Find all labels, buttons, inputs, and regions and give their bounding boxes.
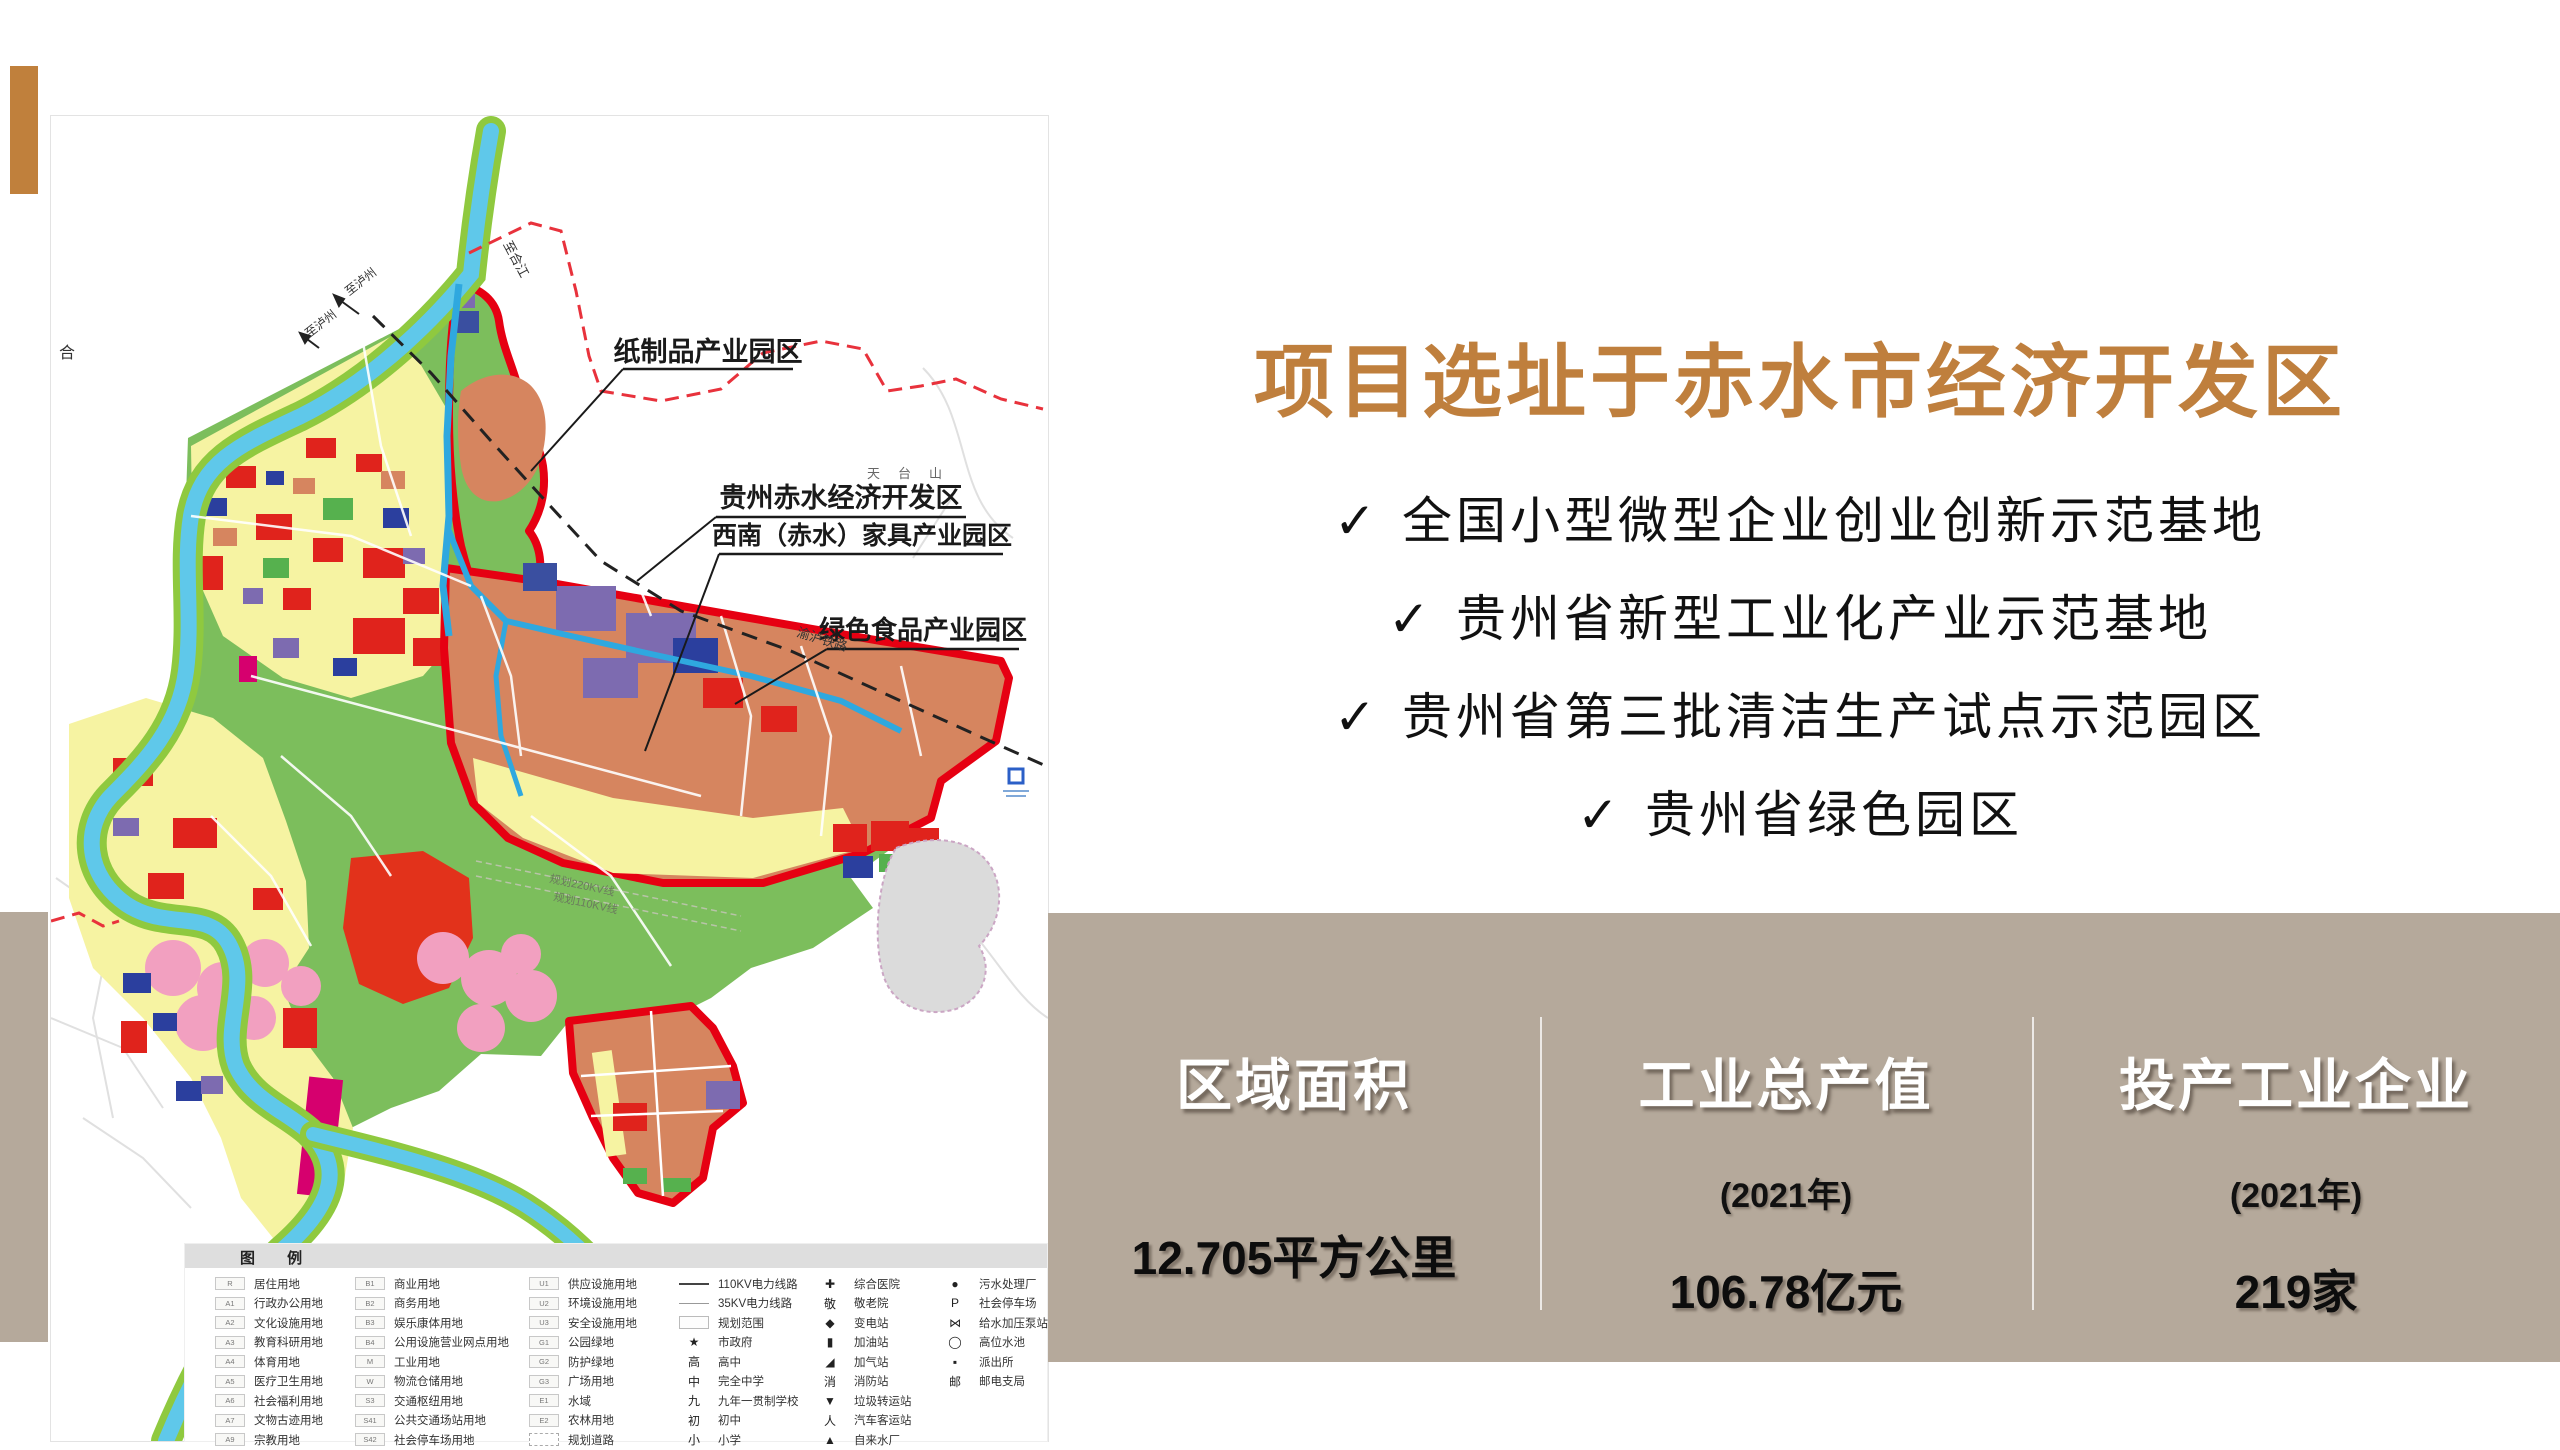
legend-label: 九年一贯制学校 <box>718 1393 799 1409</box>
legend-label: 综合医院 <box>854 1276 900 1292</box>
legend-item: ●污水处理厂 <box>940 1274 1048 1294</box>
zone-food-park <box>569 1006 743 1203</box>
legend-label: 垃圾转运站 <box>854 1393 912 1409</box>
check-icon: ✓ <box>1334 493 1380 549</box>
sym-swatch: 人 <box>815 1414 845 1427</box>
legend-item: S3交通枢纽用地 <box>355 1391 509 1411</box>
legend-item: ◆变电站 <box>815 1313 912 1333</box>
legend-item: A3教育科研用地 <box>215 1333 323 1353</box>
legend-item: ▼垃圾转运站 <box>815 1391 912 1411</box>
legend-label: 汽车客运站 <box>854 1412 912 1428</box>
legend-item: ✚综合医院 <box>815 1274 912 1294</box>
legend-item: 110KV电力线路 <box>679 1274 799 1294</box>
legend-item: S41公共交通场站用地 <box>355 1411 509 1431</box>
legend-label: 水域 <box>568 1393 591 1409</box>
legend-item: G2防护绿地 <box>529 1352 637 1372</box>
legend-item: B3娱乐康体用地 <box>355 1313 509 1333</box>
landuse-swatch: B3 <box>355 1316 385 1329</box>
landuse-swatch: A1 <box>215 1297 245 1310</box>
landuse-swatch: G3 <box>529 1375 559 1388</box>
legend-label: 广场用地 <box>568 1373 614 1389</box>
landuse-swatch: U2 <box>529 1297 559 1310</box>
landuse-swatch: S41 <box>355 1414 385 1427</box>
map-label: 天台山 <box>867 466 960 481</box>
legend-item: 消消防站 <box>815 1372 912 1392</box>
sym-swatch: 敬 <box>815 1297 845 1310</box>
legend-label: 消防站 <box>854 1373 889 1389</box>
legend-label: 市政府 <box>718 1334 753 1350</box>
landuse-swatch: B4 <box>355 1336 385 1349</box>
legend-label: 商业用地 <box>394 1276 440 1292</box>
bullet-item: ✓贵州省绿色园区 <box>1070 766 2530 864</box>
stat-title: 投产工业企业 <box>2032 1041 2560 1122</box>
legend-item: E1水域 <box>529 1391 637 1411</box>
legend-column: ✚综合医院敬敬老院◆变电站▮加油站◢加气站消消防站▼垃圾转运站人汽车客运站▲自来… <box>815 1274 912 1450</box>
legend-item: B2商务用地 <box>355 1294 509 1314</box>
landuse-swatch: E2 <box>529 1414 559 1427</box>
legend-label: 35KV电力线路 <box>718 1295 792 1311</box>
sym-swatch: ▮ <box>815 1336 845 1349</box>
legend-item: ⋈给水加压泵站 <box>940 1313 1048 1333</box>
legend-item: ◯高位水池 <box>940 1333 1048 1353</box>
legend-item: E2农林用地 <box>529 1411 637 1431</box>
title-accent-bar <box>10 66 38 194</box>
line35-swatch <box>679 1297 709 1310</box>
sym-swatch: 高 <box>679 1355 709 1368</box>
legend-label: 体育用地 <box>254 1354 300 1370</box>
map-label: 纸制品产业园区 <box>614 336 803 367</box>
legend-item: B1商业用地 <box>355 1274 509 1294</box>
legend-header: 图 例 <box>185 1244 1047 1268</box>
landuse-swatch: G2 <box>529 1355 559 1368</box>
legend-label: 文化设施用地 <box>254 1315 323 1331</box>
map-label: 西南（赤水）家具产业园区 <box>712 521 1012 550</box>
stat-year: (2021年) <box>1540 1168 2032 1217</box>
legend-item: A5医疗卫生用地 <box>215 1372 323 1392</box>
legend-label: 初中 <box>718 1412 741 1428</box>
legend-item: ▪派出所 <box>940 1352 1048 1372</box>
stat-enterprises: 投产工业企业 (2021年) 219家 <box>2032 913 2560 1362</box>
legend-item: R居住用地 <box>215 1274 323 1294</box>
map-label: 至泸州 <box>302 307 339 340</box>
legend-label: 加气站 <box>854 1354 889 1370</box>
legend-item: 邮邮电支局 <box>940 1372 1048 1392</box>
legend-label: 交通枢纽用地 <box>394 1393 463 1409</box>
landuse-swatch: M <box>355 1355 385 1368</box>
legend-item: A1行政办公用地 <box>215 1294 323 1314</box>
bullet-text: 贵州省绿色园区 <box>1645 787 2023 843</box>
map-label: 至合江 <box>500 238 532 279</box>
stat-area: 区域面积 12.705平方公里 <box>1048 913 1540 1362</box>
bullet-item: ✓贵州省第三批清洁生产试点示范园区 <box>1070 668 2530 766</box>
section-headline: 项目选址于赤水市经济开发区 <box>1070 318 2530 434</box>
left-accent-band <box>0 912 48 1342</box>
sym-swatch: ⋈ <box>940 1316 970 1329</box>
legend-item: 敬敬老院 <box>815 1294 912 1314</box>
legend-label: 高中 <box>718 1354 741 1370</box>
legend-column: 110KV电力线路35KV电力线路规划范围★市政府高高中中完全中学九九年一贯制学… <box>679 1274 799 1450</box>
legend-label: 公用设施营业网点用地 <box>394 1334 509 1350</box>
line110-swatch <box>679 1277 709 1290</box>
sym-swatch: ▼ <box>815 1394 845 1407</box>
stat-title: 工业总产值 <box>1540 1041 2032 1122</box>
legend-item: U2环境设施用地 <box>529 1294 637 1314</box>
legend-column: ●污水处理厂P社会停车场⋈给水加压泵站◯高位水池▪派出所邮邮电支局 <box>940 1274 1048 1391</box>
legend-label: 高位水池 <box>979 1334 1025 1350</box>
legend-label: 社会停车场 <box>979 1295 1037 1311</box>
legend-label: 教育科研用地 <box>254 1334 323 1350</box>
map-label: 贵州赤水经济开发区 <box>720 482 963 513</box>
legend-label: 给水加压泵站 <box>979 1315 1048 1331</box>
legend-item: 高高中 <box>679 1352 799 1372</box>
sym-swatch: P <box>940 1297 970 1310</box>
bullet-text: 贵州省第三批清洁生产试点示范园区 <box>1402 689 2266 745</box>
landuse-swatch: R <box>215 1277 245 1290</box>
legend-column: U1供应设施用地U2环境设施用地U3安全设施用地G1公园绿地G2防护绿地G3广场… <box>529 1274 637 1450</box>
landuse-swatch: A4 <box>215 1355 245 1368</box>
sym-swatch: ● <box>940 1277 970 1290</box>
legend-label: 环境设施用地 <box>568 1295 637 1311</box>
bullet-list: ✓全国小型微型企业创业创新示范基地 ✓贵州省新型工业化产业示范基地 ✓贵州省第三… <box>1070 472 2530 864</box>
map-legend: 图 例 R居住用地A1行政办公用地A2文化设施用地A3教育科研用地A4体育用地A… <box>184 1243 1048 1442</box>
sym-swatch: 九 <box>679 1394 709 1407</box>
legend-item: 中完全中学 <box>679 1372 799 1392</box>
legend-item: ▮加油站 <box>815 1333 912 1353</box>
check-icon: ✓ <box>1334 689 1380 745</box>
stat-title: 区域面积 <box>1048 1041 1540 1122</box>
legend-item: ★市政府 <box>679 1333 799 1353</box>
landuse-swatch: A5 <box>215 1375 245 1388</box>
legend-label: 污水处理厂 <box>979 1276 1037 1292</box>
stat-value: 106.78亿元 <box>1540 1256 2032 1322</box>
legend-item: A4体育用地 <box>215 1352 323 1372</box>
planning-map: 纸制品产业园区贵州赤水经济开发区西南（赤水）家具产业园区绿色食品产业园区渝泸铁路… <box>50 115 1049 1442</box>
landuse-swatch: A2 <box>215 1316 245 1329</box>
bullet-item: ✓贵州省新型工业化产业示范基地 <box>1070 570 2530 668</box>
legend-item: U3安全设施用地 <box>529 1313 637 1333</box>
landuse-swatch: A3 <box>215 1336 245 1349</box>
legend-item: M工业用地 <box>355 1352 509 1372</box>
landuse-swatch: S3 <box>355 1394 385 1407</box>
legend-label: 社会福利用地 <box>254 1393 323 1409</box>
check-icon: ✓ <box>1388 591 1434 647</box>
gray-area <box>878 840 999 1012</box>
sym-swatch: ▪ <box>940 1355 970 1368</box>
legend-item: A2文化设施用地 <box>215 1313 323 1333</box>
legend-item: B4公用设施营业网点用地 <box>355 1333 509 1353</box>
legend-label: 农林用地 <box>568 1412 614 1428</box>
stat-output: 工业总产值 (2021年) 106.78亿元 <box>1540 913 2032 1362</box>
legend-label: 居住用地 <box>254 1276 300 1292</box>
legend-label: 110KV电力线路 <box>718 1276 798 1292</box>
legend-item: 九九年一贯制学校 <box>679 1391 799 1411</box>
legend-item: G3广场用地 <box>529 1372 637 1392</box>
bullet-text: 贵州省新型工业化产业示范基地 <box>1456 591 2212 647</box>
map-label: 绿色食品产业园区 <box>819 615 1027 645</box>
legend-label: 派出所 <box>979 1354 1014 1370</box>
legend-label: 医疗卫生用地 <box>254 1373 323 1389</box>
legend-label: 完全中学 <box>718 1373 764 1389</box>
sym-swatch: 消 <box>815 1375 845 1388</box>
stat-value: 219家 <box>2032 1256 2560 1322</box>
legend-item: ◢加气站 <box>815 1352 912 1372</box>
landuse-swatch: U1 <box>529 1277 559 1290</box>
stat-value: 12.705平方公里 <box>1048 1222 1540 1288</box>
legend-label: 娱乐康体用地 <box>394 1315 463 1331</box>
legend-column: R居住用地A1行政办公用地A2文化设施用地A3教育科研用地A4体育用地A5医疗卫… <box>215 1274 323 1450</box>
legend-label: 防护绿地 <box>568 1354 614 1370</box>
sym-swatch: ◢ <box>815 1355 845 1368</box>
range-swatch <box>679 1316 709 1329</box>
landuse-swatch: B2 <box>355 1297 385 1310</box>
legend-label: 公园绿地 <box>568 1334 614 1350</box>
bullet-item: ✓全国小型微型企业创业创新示范基地 <box>1070 472 2530 570</box>
legend-label: 物流仓储用地 <box>394 1373 463 1389</box>
legend-label: 供应设施用地 <box>568 1276 637 1292</box>
map-label: 至泸州 <box>342 265 379 298</box>
legend-label: 敬老院 <box>854 1295 889 1311</box>
sym-swatch: ◯ <box>940 1336 970 1349</box>
legend-item: 人汽车客运站 <box>815 1411 912 1431</box>
landuse-swatch: G1 <box>529 1336 559 1349</box>
legend-title: 图 例 <box>240 1247 316 1268</box>
map-watermark <box>1003 769 1029 797</box>
legend-label: 安全设施用地 <box>568 1315 637 1331</box>
legend-label: 变电站 <box>854 1315 889 1331</box>
map-label: 合 <box>59 344 75 362</box>
landuse-swatch: U3 <box>529 1316 559 1329</box>
sym-swatch: ★ <box>679 1336 709 1349</box>
legend-label: 文物古迹用地 <box>254 1412 323 1428</box>
legend-item: P社会停车场 <box>940 1294 1048 1314</box>
legend-label: 邮电支局 <box>979 1373 1025 1389</box>
legend-item: 35KV电力线路 <box>679 1294 799 1314</box>
sym-swatch: ◆ <box>815 1316 845 1329</box>
legend-item: 初初中 <box>679 1411 799 1431</box>
landuse-swatch: E1 <box>529 1394 559 1407</box>
sym-swatch: 中 <box>679 1375 709 1388</box>
sym-swatch: 初 <box>679 1414 709 1427</box>
legend-item: A6社会福利用地 <box>215 1391 323 1411</box>
landuse-swatch: A7 <box>215 1414 245 1427</box>
legend-column: B1商业用地B2商务用地B3娱乐康体用地B4公用设施营业网点用地M工业用地W物流… <box>355 1274 509 1450</box>
legend-item: 规划范围 <box>679 1313 799 1333</box>
sym-swatch: ✚ <box>815 1277 845 1290</box>
stats-band: 区域面积 12.705平方公里 工业总产值 (2021年) 106.78亿元 投… <box>1048 913 2560 1362</box>
legend-item: W物流仓储用地 <box>355 1372 509 1392</box>
legend-item: U1供应设施用地 <box>529 1274 637 1294</box>
legend-item: A7文物古迹用地 <box>215 1411 323 1431</box>
check-icon: ✓ <box>1577 787 1623 843</box>
legend-label: 规划范围 <box>718 1315 764 1331</box>
bullet-text: 全国小型微型企业创业创新示范基地 <box>1402 493 2266 549</box>
legend-item: G1公园绿地 <box>529 1333 637 1353</box>
sym-swatch: 邮 <box>940 1375 970 1388</box>
stat-year: (2021年) <box>2032 1168 2560 1217</box>
legend-label: 工业用地 <box>394 1354 440 1370</box>
legend-label: 加油站 <box>854 1334 889 1350</box>
legend-label: 行政办公用地 <box>254 1295 323 1311</box>
landuse-swatch: B1 <box>355 1277 385 1290</box>
legend-label: 商务用地 <box>394 1295 440 1311</box>
landuse-swatch: W <box>355 1375 385 1388</box>
landuse-swatch: A6 <box>215 1394 245 1407</box>
legend-label: 公共交通场站用地 <box>394 1412 486 1428</box>
